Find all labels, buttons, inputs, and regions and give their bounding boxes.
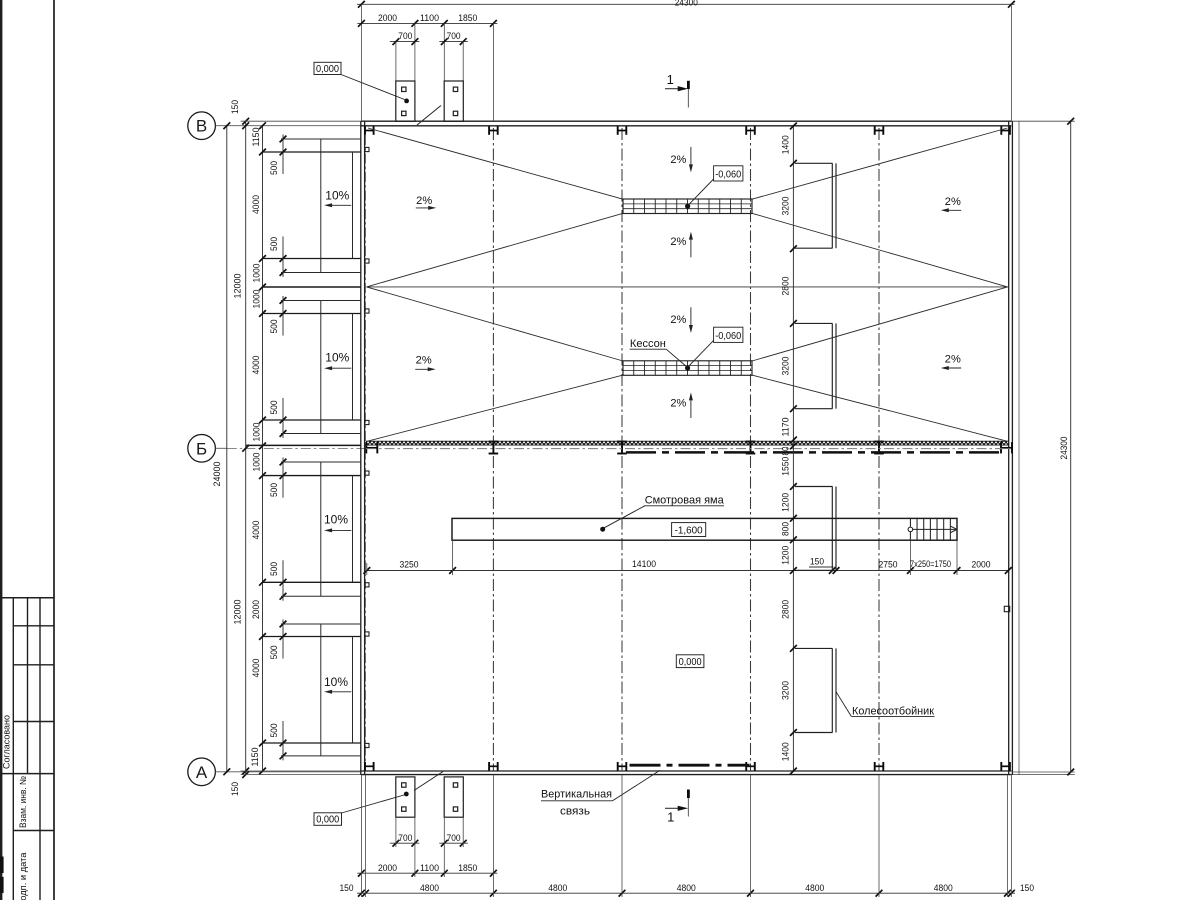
svg-text:150: 150: [340, 883, 354, 894]
svg-text:В: В: [196, 117, 207, 136]
svg-text:7x250=1750: 7x250=1750: [910, 559, 951, 570]
svg-text:4800: 4800: [677, 883, 696, 894]
svg-text:Вертикальная: Вертикальная: [541, 789, 612, 801]
svg-text:12000: 12000: [233, 600, 244, 625]
svg-text:800: 800: [781, 522, 792, 536]
svg-text:2800: 2800: [781, 277, 792, 296]
svg-text:2%: 2%: [416, 195, 432, 207]
svg-text:-0,060: -0,060: [715, 331, 741, 342]
svg-text:-0,060: -0,060: [715, 170, 741, 181]
svg-text:1000: 1000: [252, 264, 263, 283]
svg-text:4000: 4000: [251, 659, 262, 678]
svg-text:80: 80: [781, 447, 792, 456]
svg-text:3200: 3200: [781, 681, 792, 700]
svg-text:500: 500: [269, 483, 280, 497]
svg-text:500: 500: [269, 320, 280, 334]
svg-text:2%: 2%: [416, 355, 432, 367]
svg-text:Смотровая яма: Смотровая яма: [645, 494, 725, 506]
svg-text:500: 500: [269, 562, 280, 576]
svg-text:связь: связь: [560, 806, 590, 818]
svg-text:0,000: 0,000: [316, 815, 339, 826]
svg-text:1000: 1000: [252, 290, 263, 309]
svg-text:1400: 1400: [781, 742, 792, 761]
svg-text:1550: 1550: [781, 457, 792, 476]
svg-text:2000: 2000: [378, 13, 397, 24]
svg-text:1150: 1150: [251, 128, 262, 147]
svg-text:500: 500: [269, 645, 280, 659]
svg-text:2%: 2%: [670, 154, 686, 166]
svg-text:4000: 4000: [251, 521, 262, 540]
svg-text:1100: 1100: [420, 863, 439, 874]
svg-text:500: 500: [269, 724, 280, 738]
svg-text:-1,600: -1,600: [675, 525, 703, 536]
svg-text:4000: 4000: [251, 195, 262, 214]
svg-text:2%: 2%: [945, 354, 961, 366]
svg-text:2000: 2000: [972, 560, 991, 571]
svg-text:1850: 1850: [458, 13, 477, 24]
svg-text:А: А: [196, 763, 208, 782]
svg-text:14100: 14100: [632, 559, 656, 570]
svg-text:4800: 4800: [420, 883, 439, 894]
svg-text:10%: 10%: [325, 191, 349, 203]
svg-text:1: 1: [667, 810, 674, 825]
svg-text:4800: 4800: [805, 883, 824, 894]
svg-text:Взам. инв. №: Взам. инв. №: [18, 776, 28, 828]
svg-text:1100: 1100: [420, 13, 439, 24]
svg-text:1000: 1000: [252, 423, 263, 442]
svg-text:2%: 2%: [670, 314, 686, 326]
svg-text:150: 150: [230, 782, 241, 796]
svg-text:2800: 2800: [781, 600, 792, 619]
svg-text:3200: 3200: [781, 197, 792, 216]
svg-text:2%: 2%: [945, 196, 961, 208]
svg-text:1850: 1850: [458, 863, 477, 874]
svg-text:700: 700: [398, 31, 412, 42]
svg-text:2000: 2000: [251, 600, 262, 619]
svg-text:500: 500: [269, 161, 280, 175]
svg-text:10%: 10%: [324, 677, 348, 689]
svg-text:4000: 4000: [251, 356, 262, 375]
svg-text:10%: 10%: [325, 352, 349, 364]
svg-text:1170: 1170: [781, 418, 792, 437]
svg-text:700: 700: [447, 31, 461, 42]
svg-text:10%: 10%: [324, 515, 348, 527]
svg-text:500: 500: [269, 237, 280, 251]
svg-text:Колесоотбойник: Колесоотбойник: [852, 706, 934, 718]
svg-text:700: 700: [447, 833, 461, 844]
svg-text:12000: 12000: [233, 274, 244, 299]
svg-text:Подп. и дата: Подп. и дата: [18, 853, 28, 900]
svg-text:700: 700: [398, 833, 412, 844]
svg-text:24300: 24300: [1059, 437, 1070, 460]
svg-text:4800: 4800: [934, 883, 953, 894]
svg-text:Согласовано: Согласовано: [2, 715, 12, 769]
svg-text:1: 1: [667, 72, 674, 87]
svg-text:24000: 24000: [212, 462, 223, 487]
svg-text:2750: 2750: [879, 560, 898, 571]
svg-text:24300: 24300: [675, 0, 698, 9]
svg-text:2%: 2%: [670, 236, 686, 248]
svg-text:0,000: 0,000: [316, 64, 339, 75]
svg-text:2%: 2%: [670, 398, 686, 410]
svg-text:3250: 3250: [400, 560, 419, 571]
svg-text:150: 150: [1020, 883, 1034, 894]
svg-text:1000: 1000: [252, 453, 263, 472]
svg-text:Б: Б: [196, 439, 207, 458]
svg-text:1150: 1150: [250, 748, 261, 767]
svg-text:4800: 4800: [548, 883, 567, 894]
svg-text:3200: 3200: [781, 357, 792, 376]
svg-text:Кессон: Кессон: [630, 338, 666, 350]
svg-text:1200: 1200: [781, 493, 792, 512]
svg-text:1400: 1400: [781, 135, 792, 154]
svg-text:2000: 2000: [378, 863, 397, 874]
svg-text:150: 150: [230, 100, 241, 114]
svg-text:500: 500: [269, 401, 280, 415]
svg-text:1200: 1200: [781, 546, 792, 565]
svg-text:0,000: 0,000: [679, 657, 702, 668]
svg-text:150: 150: [810, 557, 824, 568]
